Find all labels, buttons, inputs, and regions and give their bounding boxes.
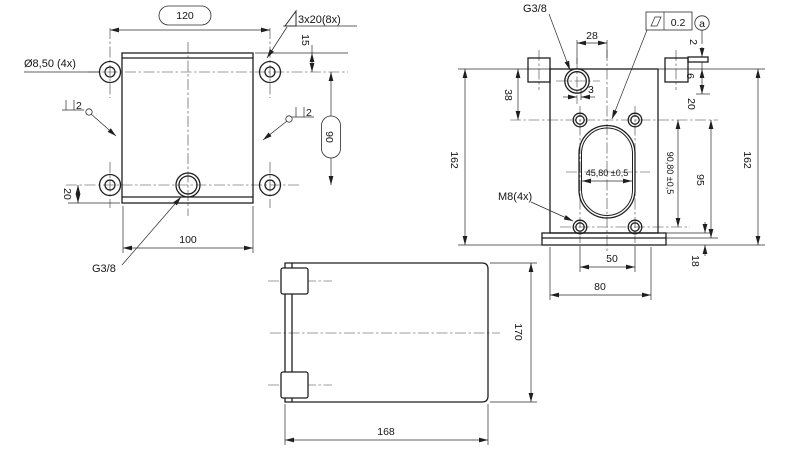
side-view-dimensions (285, 263, 537, 445)
dim-15-label: 15 (299, 34, 311, 46)
drawing-sheet: 120 3x20(8x) 15 Ø8,50 (4x) 2 2 90 20 100… (0, 0, 800, 450)
dim-3-label: 3 (588, 84, 594, 96)
edge-value-right: 2 (306, 107, 312, 119)
datum-balloon: a (695, 16, 709, 30)
dim-80-label: 80 (594, 281, 606, 293)
dim-100-label: 100 (179, 234, 197, 246)
edge-symbol-left (62, 100, 116, 136)
dim-90-label: 90 (323, 131, 335, 143)
top-view: 120 3x20(8x) 15 Ø8,50 (4x) 2 2 90 20 100… (24, 6, 357, 275)
side-view-body (281, 263, 488, 402)
datum-label: a (699, 18, 705, 30)
chamfer-icon (285, 11, 296, 26)
drawing-canvas: 120 3x20(8x) 15 Ø8,50 (4x) 2 2 90 20 100… (0, 0, 800, 450)
dim-120-label: 120 (176, 10, 194, 22)
dim-50-label: 50 (606, 253, 618, 265)
front-view-body (528, 57, 708, 245)
dim-95-label: 95 (694, 174, 706, 186)
hole-diameter-label: Ø8,50 (4x) (24, 58, 76, 70)
side-view: 170 168 (268, 263, 537, 445)
flatness-frame: 0.2 (646, 12, 692, 30)
dim-2-label: 2 (687, 39, 699, 45)
dim-170-label: 170 (512, 323, 524, 341)
dim-168-label: 168 (377, 426, 395, 438)
dim-162-right-label: 162 (741, 151, 753, 169)
dim-38-label: 38 (502, 89, 514, 101)
flatness-value: 0.2 (671, 17, 686, 29)
side-view-centerlines (268, 281, 500, 385)
dim-28-label: 28 (586, 30, 598, 42)
chamfer-note-label: 3x20(8x) (298, 14, 341, 26)
dim-162-left-label: 162 (448, 151, 460, 169)
dim-20-label: 20 (61, 188, 73, 200)
dim-20-top-label: 20 (685, 98, 697, 110)
bolt-note-label: M8(4x) (498, 191, 532, 203)
front-view: 0.2 a G3/8 28 3 38 162 M8(4x) 45,80 ±0,5… (448, 3, 765, 300)
top-view-centerlines (66, 28, 348, 216)
thread-label-front-view: G3/8 (523, 3, 547, 15)
slot-height-label: 90,80 ±0,5 (665, 152, 675, 194)
dim-18-label: 18 (689, 255, 701, 267)
thread-label-top-view: G3/8 (92, 263, 116, 275)
front-view-centerlines (510, 50, 718, 252)
slot-width-label: 45,80 ±0,5 (586, 168, 628, 178)
dim-6-label: 6 (684, 73, 696, 79)
top-view-body (100, 53, 281, 203)
edge-value-left: 2 (76, 100, 82, 112)
